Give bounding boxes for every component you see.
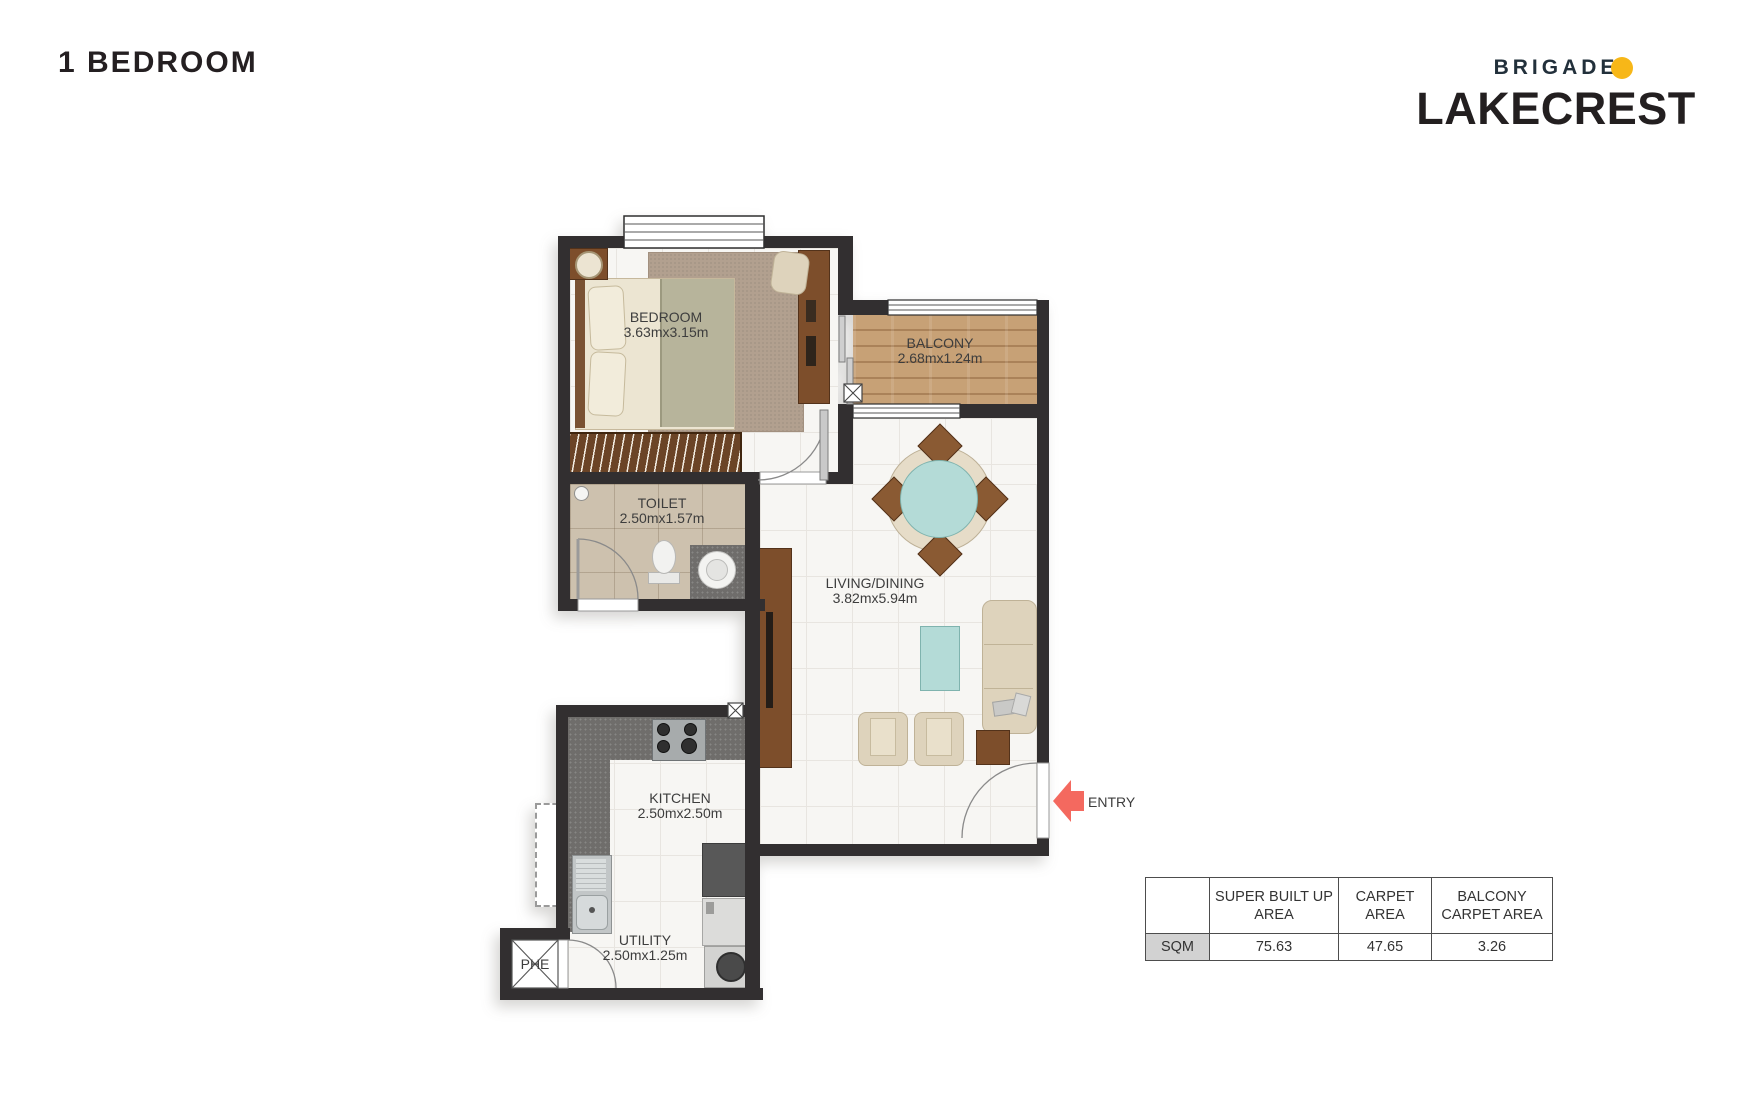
sink-drainboard bbox=[576, 859, 606, 891]
blank-header-cell bbox=[1146, 878, 1210, 934]
tv-unit bbox=[758, 548, 792, 768]
header-super-built-up: SUPER BUILT UP AREA bbox=[1210, 878, 1339, 934]
wall bbox=[745, 472, 760, 1000]
dryer-drum-icon bbox=[716, 952, 746, 982]
wall bbox=[838, 300, 888, 315]
room-label-balcony: BALCONY 2.68mx1.24m bbox=[898, 336, 983, 366]
area-table: SUPER BUILT UP AREA CARPET AREA BALCONY … bbox=[1145, 877, 1553, 961]
room-label-toilet: TOILET 2.50mx1.57m bbox=[620, 496, 705, 526]
sofa-seam bbox=[984, 644, 1033, 645]
room-name: BALCONY bbox=[898, 336, 983, 351]
bed-blanket bbox=[660, 279, 734, 427]
room-label-bedroom: BEDROOM 3.63mx3.15m bbox=[624, 310, 709, 340]
room-name: BEDROOM bbox=[624, 310, 709, 325]
value-balcony-carpet-area: 3.26 bbox=[1432, 934, 1553, 961]
wall bbox=[558, 236, 570, 611]
header-carpet-area: CARPET AREA bbox=[1339, 878, 1432, 934]
bed-pillow bbox=[587, 351, 626, 417]
living-window-icon bbox=[853, 404, 960, 418]
room-dims: 2.50mx1.25m bbox=[603, 948, 688, 963]
stove-burner bbox=[657, 723, 670, 736]
stove-burner bbox=[657, 740, 670, 753]
wall bbox=[826, 472, 853, 484]
entry-arrow-tail bbox=[1070, 791, 1084, 811]
armchair-seat bbox=[926, 718, 952, 756]
value-super-built-up: 75.63 bbox=[1210, 934, 1339, 961]
phe-text: PHE bbox=[521, 957, 550, 972]
washbasin-bowl bbox=[706, 559, 728, 581]
balcony-slider-icon bbox=[839, 316, 853, 404]
wall bbox=[1037, 838, 1049, 856]
balcony-railing-icon bbox=[888, 300, 1037, 315]
entry-arrow-icon bbox=[1053, 780, 1071, 822]
room-label-kitchen: KITCHEN 2.50mx2.50m bbox=[638, 791, 723, 821]
side-table bbox=[976, 730, 1010, 765]
coffee-table bbox=[920, 626, 960, 691]
room-dims: 2.50mx1.57m bbox=[620, 511, 705, 526]
stove-burner bbox=[681, 738, 697, 754]
bedroom-door-sill bbox=[760, 472, 826, 484]
wall bbox=[556, 705, 568, 940]
shower-drain-icon bbox=[574, 486, 589, 501]
room-label-utility: UTILITY 2.50mx1.25m bbox=[603, 933, 688, 963]
dining-table-glass bbox=[900, 460, 978, 538]
header-balcony-carpet-area: BALCONY CARPET AREA bbox=[1432, 878, 1553, 934]
room-dims: 3.82mx5.94m bbox=[826, 591, 925, 606]
toilet-door-sill bbox=[578, 599, 638, 611]
table-lamp-icon bbox=[575, 251, 603, 279]
room-name: KITCHEN bbox=[638, 791, 723, 806]
entry-label: ENTRY bbox=[1088, 794, 1135, 810]
wall bbox=[558, 599, 578, 611]
wall bbox=[1037, 300, 1049, 763]
desk-accessory bbox=[806, 336, 816, 366]
area-table-header-row: SUPER BUILT UP AREA CARPET AREA BALCONY … bbox=[1146, 878, 1553, 934]
room-dims: 3.63mx3.15m bbox=[624, 325, 709, 340]
area-table-data-row: SQM 75.63 47.65 3.26 bbox=[1146, 934, 1553, 961]
wardrobe bbox=[567, 432, 742, 476]
value-carpet-area: 47.65 bbox=[1339, 934, 1432, 961]
tv-icon bbox=[766, 612, 773, 708]
wc-bowl-icon bbox=[652, 540, 676, 574]
wall bbox=[556, 705, 745, 717]
room-dims: 2.68mx1.24m bbox=[898, 351, 983, 366]
armchair-seat bbox=[870, 718, 896, 756]
sink-tap bbox=[589, 907, 595, 913]
room-name: LIVING/DINING bbox=[826, 576, 925, 591]
washer-panel bbox=[706, 902, 714, 914]
wall bbox=[500, 928, 570, 940]
desk-chair bbox=[769, 250, 810, 297]
wall bbox=[745, 844, 1049, 856]
room-name: UTILITY bbox=[603, 933, 688, 948]
unit-cell: SQM bbox=[1146, 934, 1210, 961]
room-label-living-dining: LIVING/DINING 3.82mx5.94m bbox=[826, 576, 925, 606]
stove-burner bbox=[684, 723, 697, 736]
bed-pillow bbox=[587, 285, 626, 351]
wall bbox=[500, 988, 763, 1000]
room-dims: 2.50mx2.50m bbox=[638, 806, 723, 821]
phe-label: PHE bbox=[521, 957, 550, 972]
desk-accessory bbox=[806, 300, 816, 322]
sofa-seam bbox=[984, 688, 1033, 689]
entry-door-sill bbox=[1037, 763, 1049, 838]
room-name: TOILET bbox=[620, 496, 705, 511]
bed-headboard bbox=[575, 278, 585, 428]
bedroom-window-icon bbox=[624, 216, 764, 248]
wall bbox=[960, 404, 1049, 418]
wall bbox=[558, 472, 760, 484]
floorplan-page: 1 BEDROOM BRIGADE LAKECREST bbox=[0, 0, 1754, 1116]
fridge bbox=[702, 843, 749, 897]
